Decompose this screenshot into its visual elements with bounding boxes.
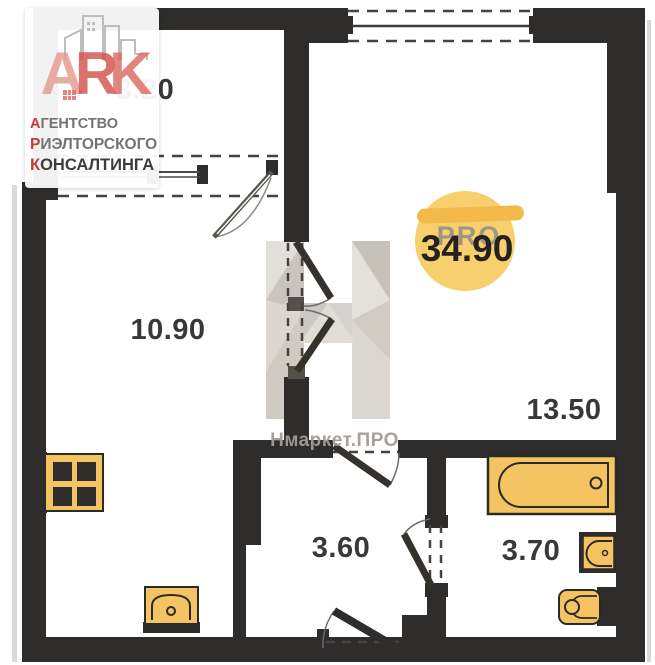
ark-agency-logo: ARK АГЕНТСТВО РИЭЛТОРСКОГО КОНСАЛТИНГА <box>25 8 159 188</box>
wall-left <box>22 182 46 662</box>
wall-bath-left-upper <box>427 458 446 518</box>
stove-icon <box>45 454 103 511</box>
wall-bath-left-lower <box>427 595 446 640</box>
logo-text-line1: АГЕНТСТВО <box>30 116 118 132</box>
wall-central-upper <box>284 8 309 240</box>
total-area-value: 34.90 <box>407 228 527 270</box>
balcony-window-jamb-mid <box>197 165 208 184</box>
ark-letter-r: R <box>75 40 109 107</box>
wall-right-upper <box>607 8 645 193</box>
washbasin-icon <box>579 532 619 573</box>
ark-letter-k: K <box>109 40 143 107</box>
toilet-icon <box>559 587 618 626</box>
kitchen-living-area-label: 10.90 <box>108 314 228 347</box>
window-jamb-left <box>341 16 353 34</box>
balcony-door <box>214 172 272 237</box>
window-jamb-right <box>529 16 541 34</box>
ark-house-window-icon <box>63 90 76 100</box>
nmarket-caption-watermark: Нмаркет.ПРО <box>262 430 407 452</box>
wall-right-lower <box>616 193 645 662</box>
living-room-area-label: 13.50 <box>504 394 624 427</box>
wall-central-door-jamb-top <box>284 226 309 242</box>
bathtub-icon <box>488 456 616 514</box>
wall-hall-left <box>233 440 261 545</box>
bathroom-area-label: 3.70 <box>481 535 581 568</box>
wall-hall-left-recess <box>233 545 246 637</box>
hallway-area-label: 3.60 <box>291 532 391 565</box>
wall-entry-jamb-right <box>402 615 427 640</box>
kitchen-sink-icon <box>143 587 200 633</box>
logo-text-line2: РИЭЛТОРСКОГО <box>30 136 157 154</box>
ark-letters: ARK <box>29 44 155 104</box>
wall-bathdoor-jamb-top <box>425 515 448 528</box>
bathroom-door <box>404 519 431 585</box>
floorplan: 3.20 10.90 13.50 3.60 3.70 PRO 34.90 Нма… <box>0 0 655 665</box>
logo-text-line3: КОНСАЛТИНГА <box>30 156 154 175</box>
